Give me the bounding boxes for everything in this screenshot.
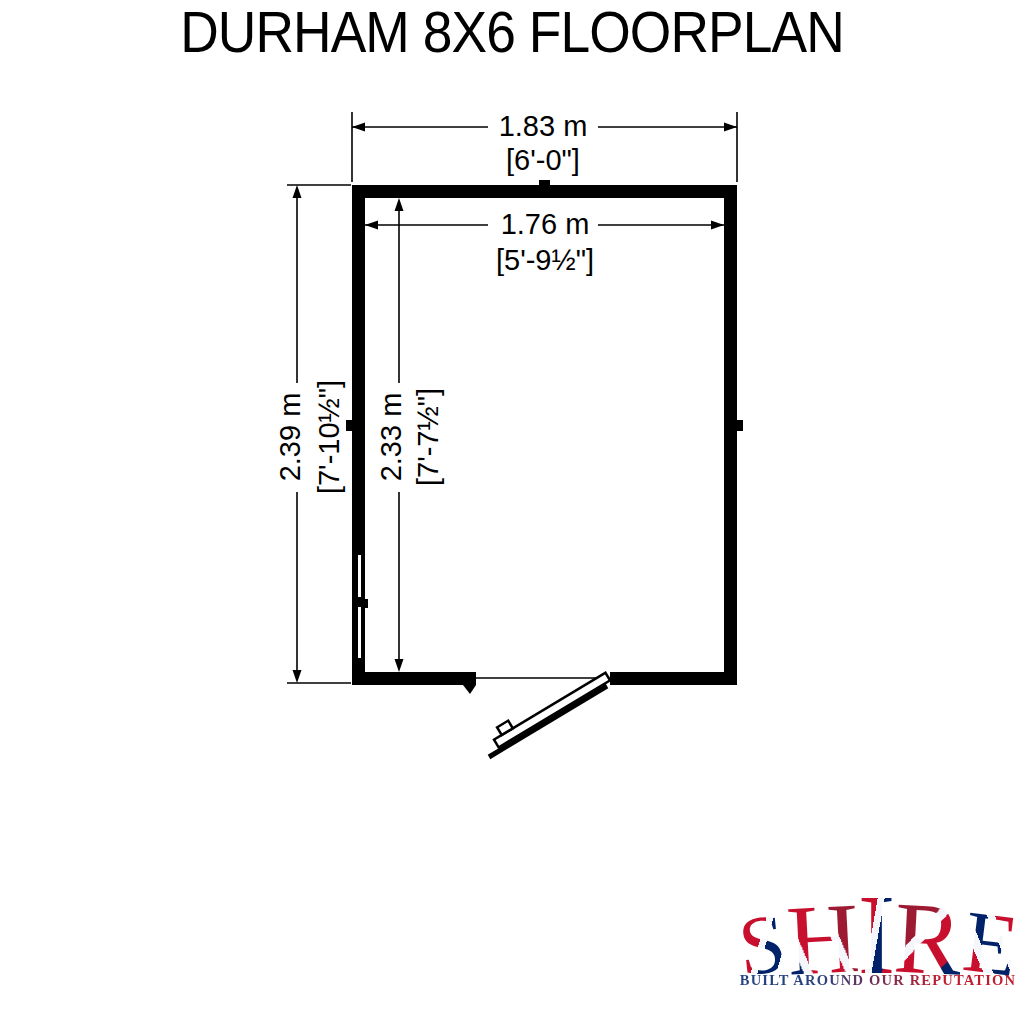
page-title: DURHAM 8X6 FLOORPLAN: [41, 0, 983, 64]
wall-bottom-right: [610, 672, 737, 685]
dim-arrow-right: [711, 221, 724, 230]
dim-arrow-left: [352, 123, 365, 132]
shire-wordmark: SHIRE: [738, 878, 1018, 984]
wall-right: [724, 185, 737, 685]
door-jamb-mark: [463, 685, 476, 694]
logo-letter-r: R: [891, 886, 964, 991]
dim-arrow-down: [395, 659, 404, 672]
wall-top: [352, 185, 737, 198]
dim-height-inner-imperial: [7'-7½"]: [412, 388, 444, 486]
window-catch: [365, 599, 368, 608]
dim-arrow-up: [395, 198, 404, 211]
window-mullion-bottom: [352, 658, 365, 665]
door-leaf: [494, 673, 610, 748]
stud-right: [737, 420, 743, 431]
shire-logo: SHIRE BUILT AROUND OUR REPUTATION: [738, 878, 1018, 989]
dim-arrow-left: [365, 221, 378, 230]
window: [352, 548, 368, 665]
stud-left: [346, 420, 352, 431]
wall-bottom-left: [352, 672, 476, 685]
dim-arrow-up: [293, 185, 302, 198]
dim-arrow-right: [724, 123, 737, 132]
door: [463, 665, 610, 757]
dim-width-inner-metric: 1.76 m: [501, 208, 590, 240]
dim-width-outer-metric: 1.83 m: [499, 110, 588, 142]
dim-width-inner-imperial: [5'-9½"]: [496, 244, 594, 276]
logo-letter-h: H: [785, 888, 862, 992]
dim-width-outer-imperial: [6'-0"]: [506, 144, 580, 176]
logo-letter-s: S: [734, 901, 789, 989]
dim-height-outer-metric: 2.39 m: [274, 393, 306, 482]
wall-left-upper: [352, 185, 365, 548]
stud-top: [539, 180, 550, 185]
dim-arrow-down: [293, 670, 302, 683]
dim-height-outer-imperial: [7'-10½"]: [313, 380, 345, 494]
window-mullion-top: [352, 548, 365, 555]
logo-letter-e: E: [958, 897, 1022, 991]
dim-height-inner-metric: 2.33 m: [375, 393, 407, 482]
window-mullion-mid: [352, 597, 365, 607]
